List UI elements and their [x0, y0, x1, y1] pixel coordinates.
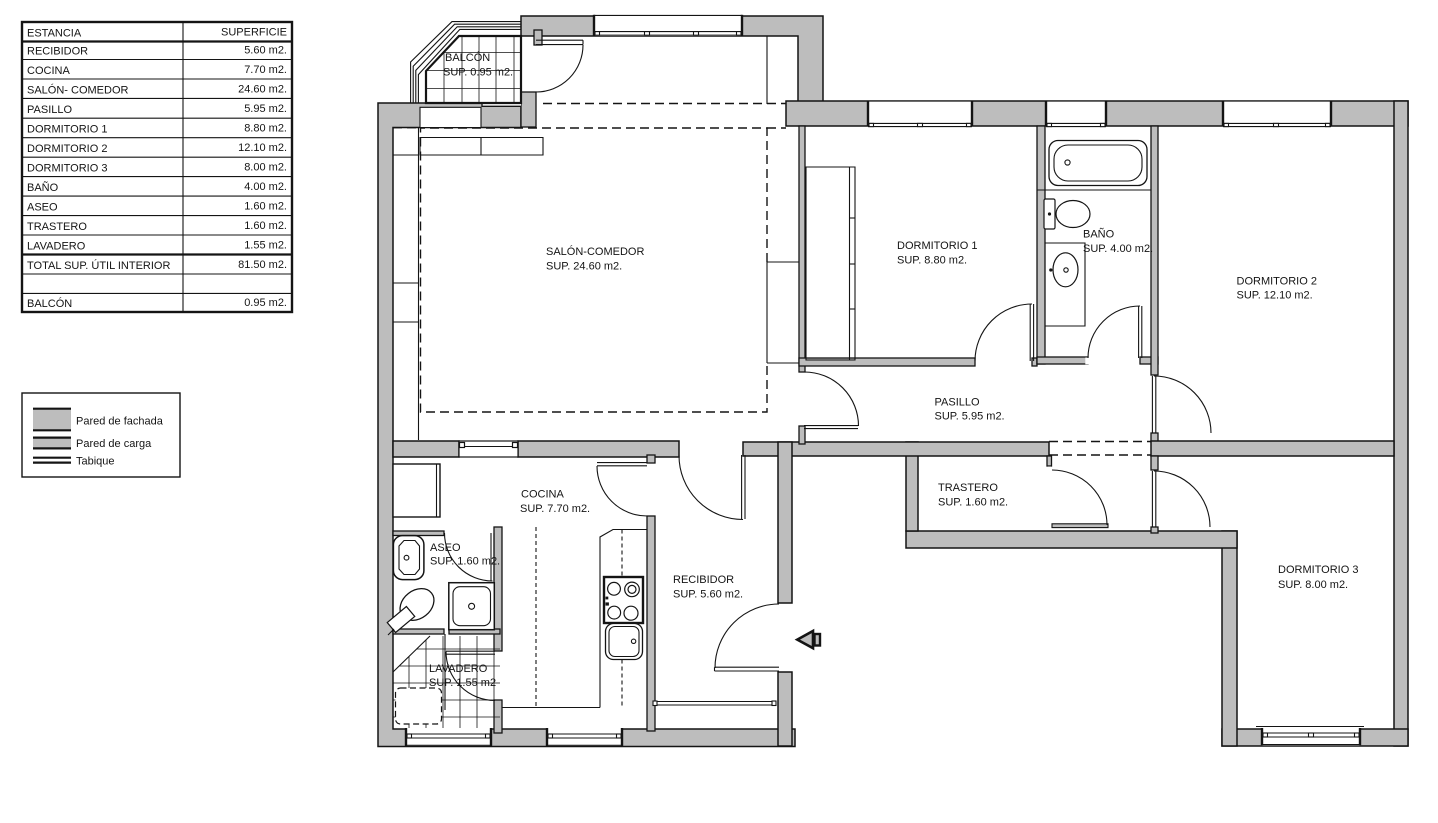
svg-text:DORMITORIO 3: DORMITORIO 3 [27, 163, 107, 175]
svg-text:LAVADERO: LAVADERO [429, 663, 488, 675]
svg-text:LAVADERO: LAVADERO [27, 241, 86, 253]
svg-text:Pared de fachada: Pared de fachada [76, 416, 164, 428]
svg-text:8.00 m2.: 8.00 m2. [244, 162, 287, 174]
svg-text:4.00 m2.: 4.00 m2. [244, 181, 287, 193]
svg-text:SALÓN-COMEDOR: SALÓN-COMEDOR [546, 245, 644, 258]
svg-text:1.60 m2.: 1.60 m2. [244, 220, 287, 232]
svg-text:DORMITORIO 1: DORMITORIO 1 [897, 240, 977, 252]
svg-text:SUP. 4.00 m2.: SUP. 4.00 m2. [1083, 243, 1153, 255]
svg-text:SUP. 1.55 m2: SUP. 1.55 m2 [429, 677, 496, 689]
svg-text:1.55 m2.: 1.55 m2. [244, 240, 287, 252]
svg-text:RECIBIDOR: RECIBIDOR [27, 46, 88, 58]
svg-text:Tabique: Tabique [76, 456, 115, 468]
svg-text:DORMITORIO 1: DORMITORIO 1 [27, 124, 107, 136]
svg-text:SUP. 1.60 m2.: SUP. 1.60 m2. [938, 497, 1008, 509]
svg-text:PASILLO: PASILLO [935, 397, 980, 409]
svg-text:1.60 m2.: 1.60 m2. [244, 201, 287, 213]
svg-text:SUP. 8.00 m2.: SUP. 8.00 m2. [1278, 579, 1348, 591]
svg-text:DORMITORIO 2: DORMITORIO 2 [1237, 276, 1317, 288]
svg-text:ASEO: ASEO [430, 542, 461, 554]
svg-text:Pared de carga: Pared de carga [76, 438, 152, 450]
svg-text:BAÑO: BAÑO [1083, 228, 1115, 241]
svg-text:ESTANCIA: ESTANCIA [27, 28, 82, 40]
svg-text:7.70 m2.: 7.70 m2. [244, 64, 287, 76]
svg-text:SUP. 5.95 m2.: SUP. 5.95 m2. [935, 411, 1005, 423]
svg-text:24.60 m2.: 24.60 m2. [238, 83, 287, 95]
svg-text:RECIBIDOR: RECIBIDOR [673, 574, 734, 586]
svg-text:SALÓN- COMEDOR: SALÓN- COMEDOR [27, 83, 129, 96]
svg-text:SUP. 7.70 m2.: SUP. 7.70 m2. [520, 503, 590, 515]
svg-text:SUPERFICIE: SUPERFICIE [221, 27, 287, 39]
svg-text:COCINA: COCINA [27, 65, 70, 77]
svg-text:COCINA: COCINA [521, 489, 564, 501]
svg-text:DORMITORIO 3: DORMITORIO 3 [1278, 564, 1358, 576]
svg-text:5.95 m2.: 5.95 m2. [244, 103, 287, 115]
svg-text:DORMITORIO 2: DORMITORIO 2 [27, 143, 107, 155]
svg-text:SUP. 12.10 m2.: SUP. 12.10 m2. [1237, 290, 1313, 302]
svg-text:0.95 m2.: 0.95 m2. [244, 297, 287, 309]
svg-text:BALCÓN: BALCÓN [27, 297, 72, 310]
svg-text:BALCÓN: BALCÓN [445, 51, 490, 64]
svg-text:TRASTERO: TRASTERO [938, 482, 998, 494]
svg-text:8.80 m2.: 8.80 m2. [244, 123, 287, 135]
svg-text:BAÑO: BAÑO [27, 181, 59, 194]
svg-text:5.60 m2.: 5.60 m2. [244, 45, 287, 57]
svg-text:PASILLO: PASILLO [27, 104, 72, 116]
svg-text:TRASTERO: TRASTERO [27, 221, 87, 233]
svg-text:SUP. 1.60 m2.: SUP. 1.60 m2. [430, 556, 500, 568]
svg-text:12.10 m2.: 12.10 m2. [238, 142, 287, 154]
svg-text:SUP. 24.60 m2.: SUP. 24.60 m2. [546, 261, 622, 273]
svg-text:SUP. 0.95 m2.: SUP. 0.95 m2. [443, 67, 513, 79]
svg-text:TOTAL SUP. ÚTIL INTERIOR: TOTAL SUP. ÚTIL INTERIOR [27, 259, 170, 272]
svg-text:ASEO: ASEO [27, 202, 58, 214]
svg-text:SUP. 8.80 m2.: SUP. 8.80 m2. [897, 255, 967, 267]
svg-text:81.50 m2.: 81.50 m2. [238, 259, 287, 271]
svg-text:SUP. 5.60 m2.: SUP. 5.60 m2. [673, 589, 743, 601]
